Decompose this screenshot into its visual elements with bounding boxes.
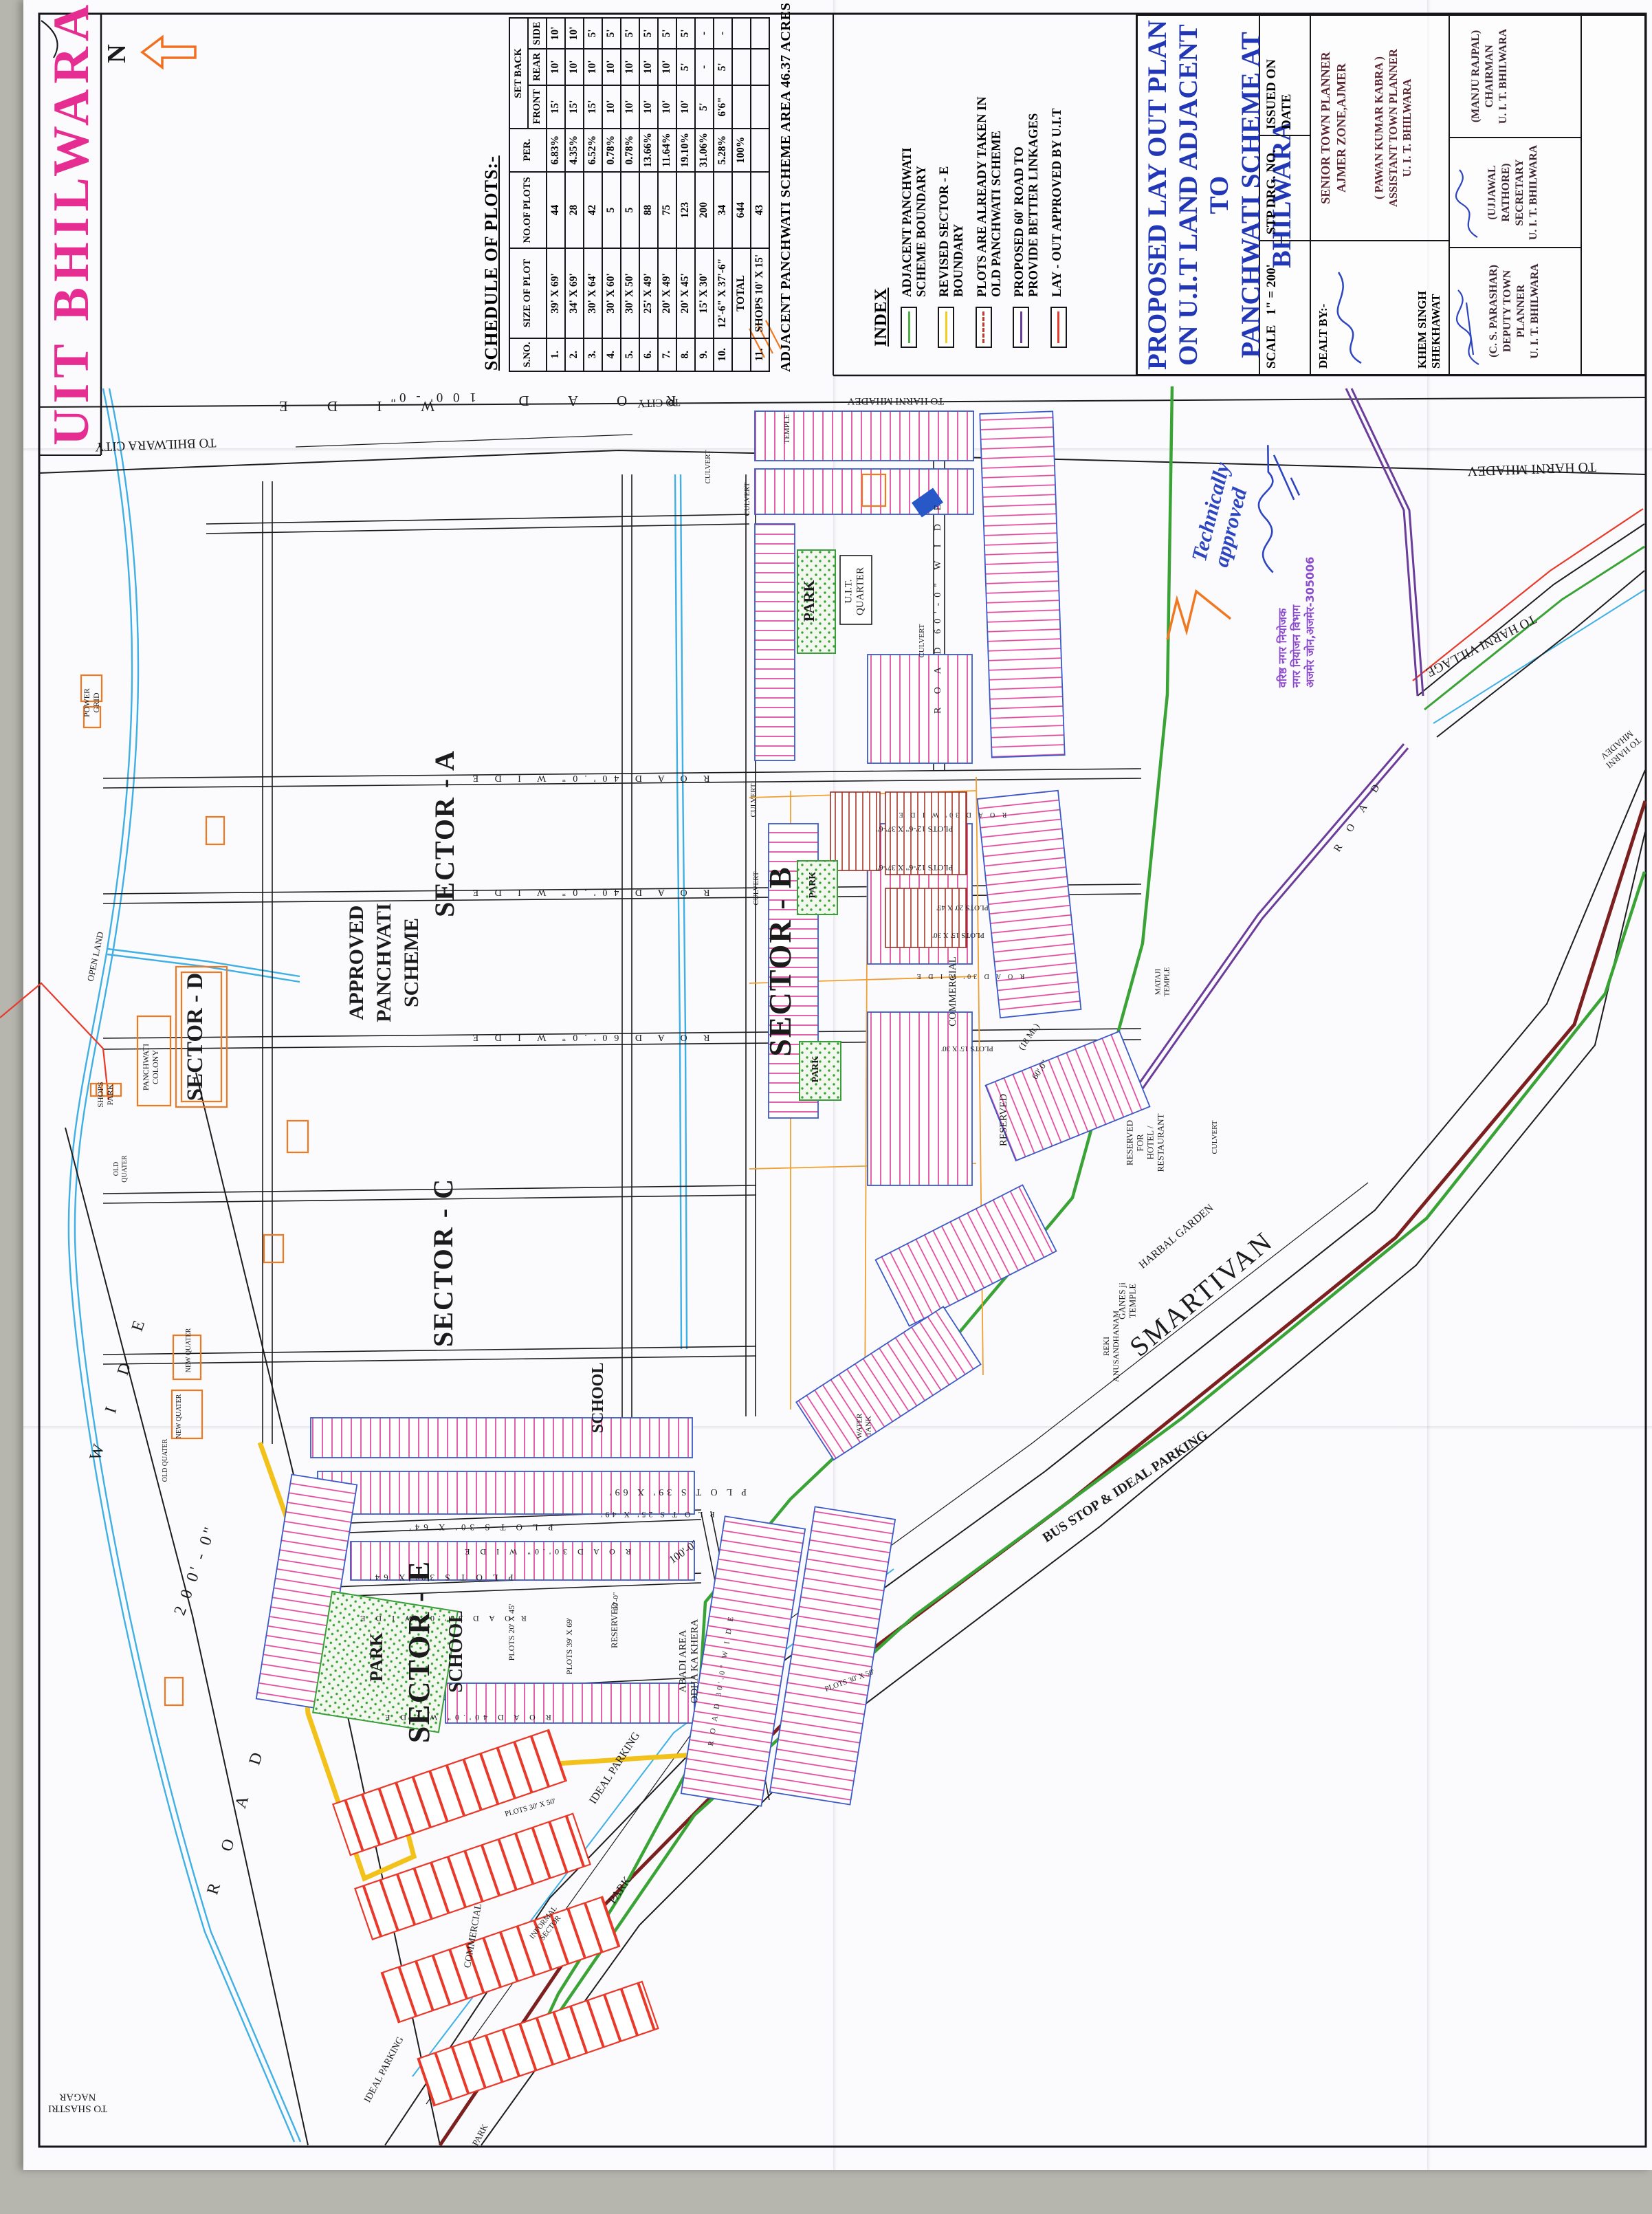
schedule-cell: - <box>695 18 714 49</box>
schedule-cell: 11. <box>751 338 769 371</box>
scale-cell: SCALE 1" = 200' <box>1260 240 1310 374</box>
schedule-cell: 5.28% <box>714 129 732 172</box>
schedule-cell: 5' <box>658 18 676 49</box>
schedule-cell: 10' <box>621 85 639 129</box>
scanned-layout-sheet: NTO BHILWARA CITYW I D E1 0 0' - 0"R O A… <box>0 0 1652 2214</box>
map-label: R O A D 30' W I D E <box>914 972 1025 980</box>
legend-item: PROPOSED 60' ROAD TO PROVIDE BETTER LINK… <box>1013 79 1041 348</box>
map-label: 2 0 0' - 0" <box>171 1522 221 1618</box>
legend-label: PLOTS ARE ALREADY TAKEN IN OLD PANCHWATI… <box>976 91 1004 297</box>
secretary-cell: (UJJAWAL RATHORE)SECRETARYU. I. T. BHILW… <box>1450 137 1581 247</box>
schedule-col-header: SIZE OF PLOT <box>509 248 547 338</box>
map-label: RESERVEDFORHOTEL /RESTAURANT <box>1125 1113 1166 1172</box>
schedule-cell: 123 <box>676 172 695 249</box>
map-label: REKIANUSANDHANAM <box>1101 1311 1121 1382</box>
map-label: R O A D 40'.0" W I D E <box>381 1713 551 1722</box>
map-label: CULVERT <box>704 450 712 483</box>
schedule-cell: 19.10% <box>676 129 695 172</box>
map-label: NEW QUATER <box>185 1328 192 1372</box>
schedule-cell: TOTAL <box>732 248 751 338</box>
map-label: TO HARNIMHADEV <box>1598 727 1643 771</box>
schedule-cell: 10' <box>639 49 658 85</box>
legend-item: REVISED SECTOR - E BOUNDARY <box>938 79 966 348</box>
map-label: TO HARNI MHADEV <box>1467 459 1597 479</box>
map-label: TO CITY <box>637 396 680 409</box>
map-label: OLD QUATER <box>162 1438 169 1482</box>
schedule-cell <box>732 338 751 371</box>
map-label: PARK <box>470 2122 490 2147</box>
schedule-cell: 20' X 45' <box>676 248 695 338</box>
map-label: SECTOR - B <box>762 866 797 1056</box>
schedule-cell: 31.06% <box>695 129 714 172</box>
schedule-cell: 10' <box>621 49 639 85</box>
schedule-cell <box>751 18 769 49</box>
schedule-cell: 10' <box>547 18 565 49</box>
map-label: R O A D 60'.0" W I D E <box>466 1032 710 1042</box>
map-label: TO HARNI VILLAGE <box>1424 611 1539 679</box>
map-label: BUS STOP & IDEAL PARKING <box>1040 1427 1211 1546</box>
schedule-cell: 10' <box>658 49 676 85</box>
schedule-cell: 15' <box>584 85 602 129</box>
schedule-cell: 5' <box>695 85 714 129</box>
schedule-cell: 0.78% <box>602 129 621 172</box>
schedule-cell: 3. <box>584 338 602 371</box>
map-label: PANCHWATICOLONY <box>141 1044 160 1090</box>
schedule-cell: 10' <box>676 85 695 129</box>
map-label: R O A D 60'-0" W I D E <box>933 499 943 714</box>
map-label: R O A D 30' W I D E <box>896 811 1007 818</box>
map-label: HARBAL GARDEN <box>1137 1202 1216 1271</box>
map-label: SMARTIVAN <box>1123 1225 1279 1363</box>
schedule-cell: 6.52% <box>584 129 602 172</box>
map-label: PARK <box>811 1056 821 1083</box>
schedule-cell: 6. <box>639 338 658 371</box>
map-label: TEMPLE <box>783 414 791 443</box>
map-label: CULVERT <box>752 871 760 905</box>
map-label: RESERVED <box>998 1094 1009 1146</box>
index-title: INDEX <box>872 79 891 347</box>
schedule-cell: 5 <box>602 172 621 249</box>
map-label: COMMERCIAL <box>947 956 958 1027</box>
schedule-cell: 5' <box>676 49 695 85</box>
signature-icon <box>1330 265 1372 369</box>
schedule-cell: 88 <box>639 172 658 249</box>
map-label: IDEAL PARKING <box>362 2035 406 2105</box>
map-label: CULVERT <box>743 482 751 516</box>
schedule-cell: 2. <box>565 338 584 371</box>
plot-blocks-pink <box>256 411 1150 1806</box>
schedule-cell <box>732 85 751 129</box>
map-label: P L O T S 30' X 64' <box>405 1522 553 1533</box>
map-label: P L O T S 30' X 64' <box>365 1572 513 1583</box>
schedule-cell: 100% <box>732 129 751 172</box>
schedule-cell: 43 <box>751 172 769 249</box>
map-label: TO SHASTRINAGAR <box>48 2092 107 2114</box>
schedule-cell: 44 <box>547 172 565 249</box>
deputy-planner-cell: (C. S. PARASHAR)DEPUTY TOWN PLANNERU. I.… <box>1450 247 1581 374</box>
office-stamp: वरिष्ठ नगर नियोजकनगर नियोजन विभागअजमेर ज… <box>1276 529 1365 688</box>
schedule-cell: 20' X 49' <box>658 248 676 338</box>
schedule-cell: 9. <box>695 338 714 371</box>
schedule-row: 8.20' X 45'12319.10%10'5'5' <box>676 18 695 371</box>
schedule-cell: - <box>695 49 714 85</box>
schedule-cell: 5 <box>621 172 639 249</box>
schedule-title: SCHEDULE OF PLOTS:- <box>481 17 502 371</box>
schedule-cell: SHOPS 10' X 15' <box>751 248 769 338</box>
map-label: PLOTS 39' X 69' <box>564 1618 574 1675</box>
schedule-cell: 5' <box>584 18 602 49</box>
map-label: N <box>102 44 131 63</box>
schedule-cell: 10' <box>658 85 676 129</box>
schedule-cell: 5' <box>676 18 695 49</box>
drg-no-cell: STP DRG. NO. <box>1260 135 1310 240</box>
legend-label: ADJACENT PANCHWATI SCHEME BOUNDARY <box>901 91 929 297</box>
schedule-cell: 10' <box>602 85 621 129</box>
schedule-cell: 644 <box>732 172 751 249</box>
map-label: PLOTS 20' X 45' <box>507 1604 516 1661</box>
schedule-row: 7.20' X 49'7511.64%10'10'5' <box>658 18 676 371</box>
schedule-cell: 10' <box>547 49 565 85</box>
map-label: SECTOR - C <box>428 1178 459 1347</box>
schedule-cell: 1. <box>547 338 565 371</box>
index-legend: INDEX ADJACENT PANCHWATI SCHEME BOUNDARY… <box>872 79 1134 348</box>
setback-header: SET BACK <box>509 18 528 129</box>
map-label: PARK <box>800 580 817 622</box>
schedule-cell <box>751 129 769 172</box>
schedule-row: 1.39' X 69'446.83%15'10'10' <box>547 18 565 371</box>
map-label: OLDQUATER <box>113 1155 129 1183</box>
schedule-cell: 6.83% <box>547 129 565 172</box>
schedule-cell: 5' <box>621 18 639 49</box>
legend-label: REVISED SECTOR - E BOUNDARY <box>938 91 966 297</box>
chairman-cell: (MANJU RAJPAL)CHAIRMANU. I. T. BHILWARA <box>1450 16 1581 137</box>
issued-cell: ISSUED ON DATE <box>1260 16 1310 135</box>
schedule-cell: 5' <box>714 49 732 85</box>
map-label: W I D E <box>87 1304 153 1462</box>
map-label: SCHOOL <box>589 1363 607 1434</box>
map-label: P L O T S 25' X 49' <box>598 1510 714 1520</box>
setback-sub-header: REAR <box>528 49 547 85</box>
agency-title: UIT BHILWARA <box>43 25 100 446</box>
map-label: RESERVED <box>609 1603 619 1648</box>
map-label: PARK <box>366 1632 386 1682</box>
schedule-cell: 10. <box>714 338 732 371</box>
legend-item: PLOTS ARE ALREADY TAKEN IN OLD PANCHWATI… <box>976 79 1004 348</box>
map-label: R O A D <box>203 1736 271 1897</box>
map-label: PLOTS 12'-6" X 37'-6" <box>876 863 954 873</box>
map-label: PARK <box>808 872 818 899</box>
schedule-cell: 200 <box>695 172 714 249</box>
legend-swatch-icon <box>938 307 954 348</box>
schedule-cell: 25' X 49' <box>639 248 658 338</box>
map-label: R O A D 30'.0" W I D E <box>356 1614 527 1623</box>
map-label: WATERTANK <box>856 1413 873 1438</box>
schedule-cell: 39' X 69' <box>547 248 565 338</box>
map-label: POWERGRID <box>82 688 101 717</box>
schedule-cell: 5. <box>621 338 639 371</box>
legend-label: LAY - OUT APPROVED BY U.I.T <box>1050 108 1065 297</box>
schedule-cell: 34 <box>714 172 732 249</box>
legend-swatch-icon <box>901 307 917 348</box>
schedule-of-plots: SCHEDULE OF PLOTS:- S.NO.SIZE OF PLOTNO.… <box>481 17 810 372</box>
schedule-row: 11.SHOPS 10' X 15'43 <box>751 18 769 371</box>
dealt-name: KHEM SINGH SHEKHAWAT <box>1416 247 1443 369</box>
scheme-boundary-green <box>529 386 1644 2056</box>
schedule-row: 5.30' X 50'50.78%10'10'5' <box>621 18 639 371</box>
map-label: R O A D 40'.0" W I D E <box>466 887 710 897</box>
map-label: ABADI AREAODHA KA KHERA <box>678 1619 701 1704</box>
schedule-cell: 10' <box>565 18 584 49</box>
schedule-row: 2.34' X 69'284.35%15'10'10' <box>565 18 584 371</box>
schedule-row: 3.30' X 64'426.52%15'10'5' <box>584 18 602 371</box>
map-label: R O A D 30'.0" W I D E <box>461 1547 631 1557</box>
drawing-title: PROPOSED LAY OUT PLANON U.I.T LAND ADJAC… <box>1138 16 1260 374</box>
schedule-cell: 7. <box>658 338 676 371</box>
map-label: (18 Mt.) <box>1016 1021 1042 1051</box>
schedule-cell: 6'6" <box>714 85 732 129</box>
schedule-row: TOTAL644100% <box>732 18 751 371</box>
schedule-cell: 13.66% <box>639 129 658 172</box>
north-arrow-icon <box>142 37 195 67</box>
dealt-by-cell: DEALT BY:- KHEM SINGH SHEKHAWAT <box>1311 240 1449 374</box>
schedule-cell <box>732 49 751 85</box>
schedule-col-header: PER. <box>509 129 547 172</box>
map-label: APPROVEDPANCHVATISCHEME <box>345 903 423 1022</box>
map-label: PLOTS 12'-6" X 37'-6" <box>876 824 954 834</box>
setback-sub-header: FRONT <box>528 85 547 129</box>
schedule-cell: 4. <box>602 338 621 371</box>
map-label: NEW QUATER <box>175 1394 183 1438</box>
schedule-cell <box>732 18 751 49</box>
schedule-cell: 8. <box>676 338 695 371</box>
schedule-cell: 10' <box>639 85 658 129</box>
schedule-cell: 34' X 69' <box>565 248 584 338</box>
schedule-cell: 12'-6" X 37'-6" <box>714 248 732 338</box>
schedule-cell: 10' <box>565 49 584 85</box>
signature-icon <box>1453 166 1483 241</box>
schedule-cell: 30' X 64' <box>584 248 602 338</box>
schedule-cell: 11.64% <box>658 129 676 172</box>
schedule-col-header: NO.OF PLOTS <box>509 172 547 249</box>
schedule-row: 4.30' X 60'50.78%10'10'5' <box>602 18 621 371</box>
setback-sub-header: SIDE <box>528 18 547 49</box>
schedule-cell: 10' <box>584 49 602 85</box>
map-label: 1 0 0' - 0" <box>387 390 476 404</box>
legend-swatch-icon <box>1013 307 1029 348</box>
map-label: R O A D <box>1332 777 1385 854</box>
schedule-cell: 15' <box>547 85 565 129</box>
schedule-cell <box>751 85 769 129</box>
schedule-cell <box>751 49 769 85</box>
schedule-cell: - <box>714 18 732 49</box>
schedule-cell: 0.78% <box>621 129 639 172</box>
map-label: SECTOR - D <box>183 973 208 1101</box>
schedule-cell: 30' X 50' <box>621 248 639 338</box>
signature-icon <box>1453 286 1484 369</box>
schedule-col-header: S.NO. <box>509 338 547 371</box>
legend-label: PROPOSED 60' ROAD TO PROVIDE BETTER LINK… <box>1013 91 1041 297</box>
schedule-cell: 42 <box>584 172 602 249</box>
schedule-cell: 5' <box>602 18 621 49</box>
schedule-footnote: ADJACENT PANCHWATI SCHEME AREA 46.37 ACR… <box>778 17 794 372</box>
map-label: CULVERT <box>1211 1120 1219 1154</box>
map-label: IDEAL PARKING <box>587 1730 642 1806</box>
map-label: CULVERT <box>918 624 926 657</box>
schedule-table: S.NO.SIZE OF PLOTNO.OF PLOTSPER.SET BACK… <box>509 17 770 372</box>
map-label: CULVERT <box>749 783 758 817</box>
schedule-cell: 5' <box>639 18 658 49</box>
map-label: P L O T S 39' X 69' <box>606 1487 747 1497</box>
legend-item: ADJACENT PANCHWATI SCHEME BOUNDARY <box>901 79 929 348</box>
map-label: PLOTS 15' X 30' <box>932 931 984 939</box>
scale-value: 1" = 200' <box>1264 264 1279 315</box>
schedule-row: 10.12'-6" X 37'-6"345.28%6'6"5'- <box>714 18 732 371</box>
roads-layer <box>39 397 1645 2145</box>
schedule-cell: 10' <box>602 49 621 85</box>
schedule-cell: 15' <box>565 85 584 129</box>
schedule-row: 9.15' X 30'20031.06%5'-- <box>695 18 714 371</box>
schedule-cell: 15' X 30' <box>695 248 714 338</box>
senior-planner-cell: SENIOR TOWN PLANNERAJMER ZONE,AJMER ( PA… <box>1311 16 1449 240</box>
legend-swatch-icon <box>976 307 992 348</box>
map-label: SECTOR - A <box>429 749 460 917</box>
canal-lines <box>69 388 1644 2142</box>
schedule-cell: 4.35% <box>565 129 584 172</box>
schedule-cell: 28 <box>565 172 584 249</box>
map-label: SHOPSPARK <box>96 1082 115 1107</box>
map-label: PLOTS 15' X 30' <box>941 1044 993 1053</box>
title-block: PROPOSED LAY OUT PLANON U.I.T LAND ADJAC… <box>1136 14 1647 376</box>
map-label: R O A D 40'.0" W I D E <box>466 773 710 783</box>
schedule-cell: 75 <box>658 172 676 249</box>
schedule-cell: 30' X 60' <box>602 248 621 338</box>
legend-item: LAY - OUT APPROVED BY U.I.T <box>1050 79 1067 348</box>
map-label: PLOTS 20' X 45' <box>936 903 989 912</box>
legend-swatch-icon <box>1050 307 1067 348</box>
map-label: MATAJITEMPLE <box>1154 967 1171 996</box>
map-label: TO HARNI MHADEV <box>848 395 945 406</box>
schedule-row: 6.25' X 49'8813.66%10'10'5' <box>639 18 658 371</box>
